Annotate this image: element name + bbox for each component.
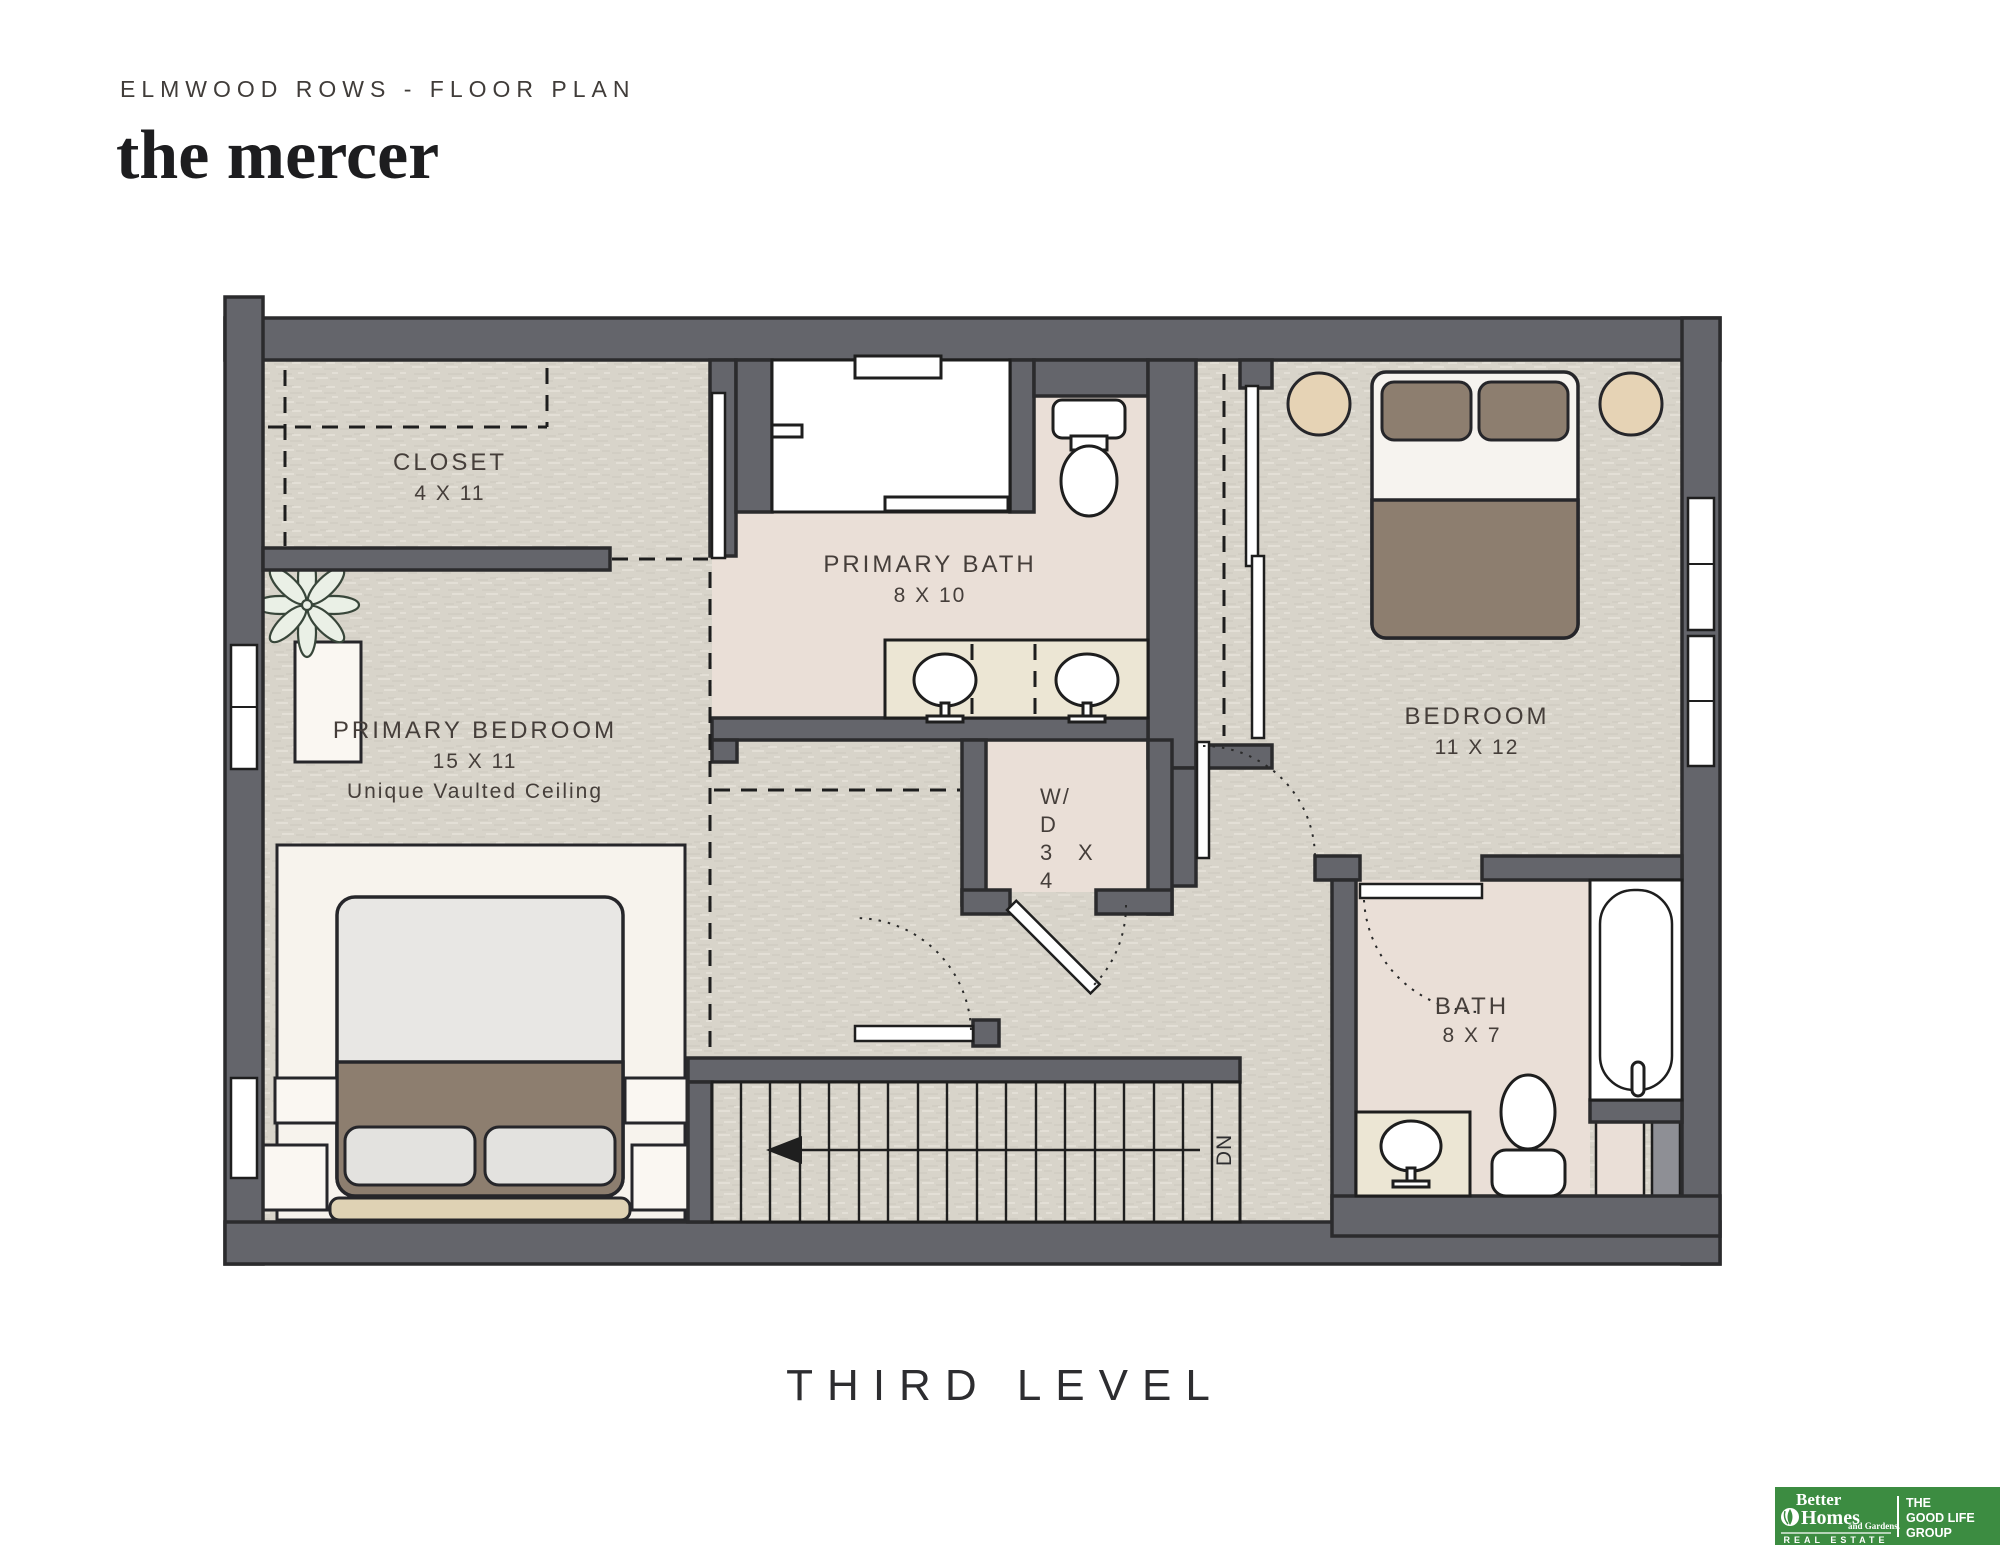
bedroom-label: BEDROOM bbox=[1404, 703, 1549, 730]
shower bbox=[772, 356, 1010, 512]
door-stub bbox=[973, 1020, 999, 1046]
primary-bedroom-dims: 15 X 11 bbox=[433, 750, 518, 773]
laundry-label-3b: X bbox=[1078, 840, 1095, 865]
laundry-label-2: D bbox=[1040, 812, 1058, 837]
logo-brand-small: and Gardens. bbox=[1848, 1521, 1900, 1531]
sink bbox=[1056, 654, 1118, 706]
bath-west-wall bbox=[1332, 880, 1356, 1222]
headboard bbox=[330, 1198, 630, 1220]
shaft bbox=[1652, 1118, 1680, 1196]
logo-group-1: THE bbox=[1906, 1496, 1931, 1510]
stairs-down-label: DN bbox=[1213, 1134, 1236, 1166]
pocket-door bbox=[712, 393, 725, 558]
level-label: THIRD LEVEL bbox=[786, 1361, 1224, 1410]
primary-bedroom-note: Unique Vaulted Ceiling bbox=[347, 780, 603, 803]
shower-handle bbox=[772, 425, 802, 437]
logo-brand-sub: REAL ESTATE bbox=[1783, 1535, 1888, 1545]
brokerage-logo: Better Homes and Gardens. REAL ESTATE TH… bbox=[1775, 1487, 2000, 1545]
logo-group-2: GOOD LIFE bbox=[1906, 1511, 1975, 1525]
bhg-leaf-icon bbox=[1781, 1508, 1799, 1526]
primary-bath-dims: 8 X 10 bbox=[894, 584, 967, 607]
dresser bbox=[295, 642, 361, 762]
pillow bbox=[1382, 382, 1471, 440]
bath-label: BATH bbox=[1435, 993, 1509, 1020]
shower-niche bbox=[855, 356, 941, 378]
hall-door-leaf bbox=[855, 1026, 973, 1041]
bath-dims: 8 X 7 bbox=[1442, 1024, 1501, 1047]
toilet-bowl bbox=[1061, 446, 1117, 516]
laundry-right-wall bbox=[1148, 740, 1172, 914]
toilet-tank bbox=[1492, 1150, 1565, 1196]
closet-dims: 4 X 11 bbox=[414, 482, 485, 505]
laundry-label-3a: 3 bbox=[1040, 840, 1054, 865]
closet-wall bbox=[263, 548, 610, 570]
window bbox=[231, 1078, 257, 1178]
nightstand bbox=[275, 1078, 337, 1123]
nightstand bbox=[258, 1145, 327, 1210]
closet-label: CLOSET bbox=[393, 449, 507, 476]
pillow bbox=[1479, 382, 1568, 440]
round-nightstand bbox=[1600, 373, 1662, 435]
laundry-label-1: W/ bbox=[1040, 784, 1071, 809]
bath-door-leaf bbox=[1360, 884, 1482, 898]
laundry-floor bbox=[986, 740, 1148, 892]
plan-title: the mercer bbox=[116, 117, 439, 194]
floor-plan: DN CLOSET 4 X 11 PRIMARY BATH 8 X 10 PRI… bbox=[225, 297, 1720, 1264]
sink bbox=[1381, 1121, 1441, 1171]
closet-bypass-door bbox=[1252, 556, 1264, 738]
primary-bedroom-label: PRIMARY BEDROOM bbox=[333, 717, 617, 744]
plan-subtitle: ELMWOOD ROWS - FLOOR PLAN bbox=[120, 76, 635, 102]
shower-glass-door bbox=[885, 497, 1008, 511]
primary-bath-label: PRIMARY BATH bbox=[823, 551, 1036, 578]
bed-blanket bbox=[1372, 500, 1578, 638]
bedroom-door-leaf bbox=[1197, 742, 1209, 858]
bedroom-south-wall bbox=[1315, 856, 1360, 880]
bedroom-dims: 11 X 12 bbox=[1435, 736, 1520, 759]
primary-pillow bbox=[485, 1127, 615, 1185]
stairs-top-wall bbox=[688, 1058, 1240, 1082]
toilet-tank bbox=[1053, 400, 1125, 438]
round-nightstand bbox=[1288, 373, 1350, 435]
bath-east-wall bbox=[1148, 360, 1196, 768]
stairs-left-wall bbox=[688, 1082, 712, 1222]
stairs: DN bbox=[712, 1082, 1240, 1222]
laundry-left-wall bbox=[962, 740, 986, 905]
outer-wall-top bbox=[225, 318, 1720, 360]
logo-group-3: GROUP bbox=[1906, 1526, 1952, 1540]
floor-plan-page: ELMWOOD ROWS - FLOOR PLAN the mercer bbox=[0, 0, 2000, 1545]
closet-bypass-door bbox=[1246, 386, 1258, 566]
toilet-bowl bbox=[1501, 1075, 1555, 1149]
tub-faucet bbox=[1632, 1062, 1644, 1096]
laundry-label-4: 4 bbox=[1040, 868, 1054, 893]
primary-pillow bbox=[345, 1127, 475, 1185]
nightstand bbox=[625, 1078, 687, 1123]
sink bbox=[914, 654, 976, 706]
outer-wall-right bbox=[1682, 318, 1720, 1264]
